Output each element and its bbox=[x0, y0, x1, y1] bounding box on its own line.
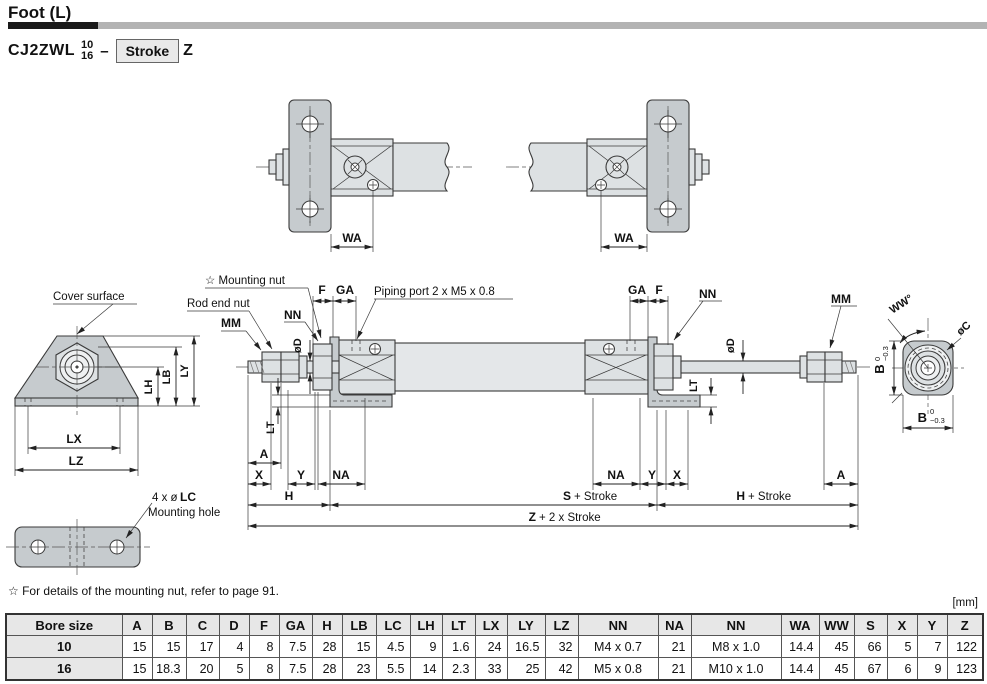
col-header-s: S bbox=[854, 614, 887, 636]
dim-label-ga-left: GA bbox=[336, 283, 354, 297]
dim-label-h-stroke-rest: + Stroke bbox=[748, 491, 791, 503]
col-header-nn-1: NN bbox=[578, 614, 658, 636]
cell: 7 bbox=[917, 636, 947, 658]
dimensions-table: Bore size A B C D F GA H LB LC LH LT LX … bbox=[5, 613, 984, 681]
cell: 5.5 bbox=[376, 658, 410, 681]
dim-label-nn-right: NN bbox=[699, 287, 716, 301]
top-view-left: WA bbox=[256, 100, 472, 252]
dim-label-lc: LC bbox=[180, 490, 196, 504]
col-header-ww: WW bbox=[819, 614, 854, 636]
dim-label-a-left: A bbox=[260, 447, 269, 461]
dim-label-wa-right: WA bbox=[614, 231, 634, 245]
cell: 32 bbox=[545, 636, 578, 658]
col-header-x: X bbox=[887, 614, 917, 636]
cell: 14.4 bbox=[781, 658, 819, 681]
col-header-ly: LY bbox=[507, 614, 545, 636]
cell: 42 bbox=[545, 658, 578, 681]
rod-end-view: WW° øC B 0 −0.3 B 0 −0.3 bbox=[872, 293, 973, 433]
dim-label-lt-right: LT bbox=[688, 379, 700, 392]
cell: M8 x 1.0 bbox=[691, 636, 781, 658]
col-header-h: H bbox=[312, 614, 342, 636]
cell: 45 bbox=[819, 658, 854, 681]
dim-label-z-stroke-letter: Z bbox=[529, 510, 536, 524]
cell: 15 bbox=[152, 636, 186, 658]
cell: 66 bbox=[854, 636, 887, 658]
cell: 24 bbox=[475, 636, 507, 658]
cell: 9 bbox=[410, 636, 442, 658]
cell: 67 bbox=[854, 658, 887, 681]
piping-port-label: Piping port 2 x M5 x 0.8 bbox=[374, 286, 495, 298]
dim-label-na-left: NA bbox=[332, 468, 350, 482]
col-header-f: F bbox=[249, 614, 279, 636]
cell: 8 bbox=[249, 658, 279, 681]
catalog-page: Foot (L) CJ2ZWL 10 16 – Stroke Z bbox=[0, 0, 987, 684]
dim-label-h-stroke-letter: H bbox=[736, 489, 745, 503]
dim-label-wa-left: WA bbox=[342, 231, 362, 245]
dim-label-lz: LZ bbox=[69, 454, 84, 468]
dim-label-f-right: F bbox=[655, 283, 662, 297]
dim-label-s-stroke-letter: S bbox=[563, 489, 571, 503]
col-header-lx: LX bbox=[475, 614, 507, 636]
cell: M4 x 0.7 bbox=[578, 636, 658, 658]
dim-label-lh: LH bbox=[143, 380, 155, 395]
dim-label-lb: LB bbox=[161, 370, 173, 385]
cell: 16.5 bbox=[507, 636, 545, 658]
dim-label-s-stroke-rest: + Stroke bbox=[574, 491, 617, 503]
cell: 28 bbox=[312, 636, 342, 658]
dim-label-a-right: A bbox=[837, 468, 846, 482]
cell: 5 bbox=[887, 636, 917, 658]
mounting-nut-footnote: ☆ For details of the mounting nut, refer… bbox=[8, 584, 279, 598]
dim-label-y-left: Y bbox=[297, 468, 305, 482]
foot-bracket-side-view: Cover surface LH LB LY LX LZ bbox=[15, 291, 200, 476]
cell: 45 bbox=[819, 636, 854, 658]
cell: 9 bbox=[917, 658, 947, 681]
cylinder-assembly-view: ☆ Mounting nut Rod end nut MM NN Piping … bbox=[187, 275, 872, 434]
dim-label-x-left: X bbox=[255, 468, 263, 482]
dim-label-h-left: H bbox=[285, 489, 294, 503]
col-header-lb: LB bbox=[342, 614, 376, 636]
cell: 23 bbox=[342, 658, 376, 681]
cell: 6 bbox=[887, 658, 917, 681]
col-header-y: Y bbox=[917, 614, 947, 636]
cell: 21 bbox=[658, 636, 691, 658]
col-header-lh: LH bbox=[410, 614, 442, 636]
col-header-lc: LC bbox=[376, 614, 410, 636]
col-header-nn-2: NN bbox=[691, 614, 781, 636]
dim-label-nn-left: NN bbox=[284, 308, 301, 322]
dim-label-b-side: B bbox=[872, 364, 887, 373]
col-header-d: D bbox=[219, 614, 249, 636]
table-row-bore-16: 16 15 18.3 20 5 8 7.5 28 23 5.5 14 2.3 3… bbox=[6, 658, 983, 681]
dim-label-oc: øC bbox=[955, 319, 974, 338]
cell: 15 bbox=[342, 636, 376, 658]
table-row-bore-10: 10 15 15 17 4 8 7.5 28 15 4.5 9 1.6 24 1… bbox=[6, 636, 983, 658]
cell: 15 bbox=[122, 636, 152, 658]
cell: M5 x 0.8 bbox=[578, 658, 658, 681]
dim-label-ww: WW° bbox=[888, 293, 916, 317]
dim-label-ga-right: GA bbox=[628, 283, 646, 297]
top-view-right: WA bbox=[506, 100, 709, 252]
cell: 28 bbox=[312, 658, 342, 681]
dim-label-mm-left: MM bbox=[221, 316, 241, 330]
cell: 18.3 bbox=[152, 658, 186, 681]
col-header-b: B bbox=[152, 614, 186, 636]
dim-label-od-left: øD bbox=[292, 338, 304, 353]
cell: 20 bbox=[186, 658, 219, 681]
cell: 122 bbox=[947, 636, 983, 658]
bore-size-cell: 10 bbox=[6, 636, 122, 658]
col-header-bore-size: Bore size bbox=[6, 614, 122, 636]
dim-label-f-left: F bbox=[318, 283, 325, 297]
cell: 5 bbox=[219, 658, 249, 681]
cell: 7.5 bbox=[279, 658, 312, 681]
cell: 7.5 bbox=[279, 636, 312, 658]
cell: 14.4 bbox=[781, 636, 819, 658]
col-header-z: Z bbox=[947, 614, 983, 636]
unit-label: [mm] bbox=[952, 597, 978, 609]
dimension-drawing: WA WA bbox=[0, 0, 987, 684]
dim-label-ly: LY bbox=[179, 364, 191, 378]
col-header-lz: LZ bbox=[545, 614, 578, 636]
col-header-na: NA bbox=[658, 614, 691, 636]
cell: 4 bbox=[219, 636, 249, 658]
dim-label-b-bottom-tol-lower: −0.3 bbox=[930, 416, 945, 425]
cell: 1.6 bbox=[442, 636, 475, 658]
dim-label-y-right: Y bbox=[648, 468, 656, 482]
bore-size-cell: 16 bbox=[6, 658, 122, 681]
cell: 123 bbox=[947, 658, 983, 681]
dim-label-mm-right: MM bbox=[831, 292, 851, 306]
dim-label-x-right: X bbox=[673, 468, 681, 482]
mounting-nut-label: ☆ Mounting nut bbox=[205, 275, 286, 287]
cell: 17 bbox=[186, 636, 219, 658]
mounting-hole-label: Mounting hole bbox=[148, 507, 220, 519]
cell: 15 bbox=[122, 658, 152, 681]
dim-label-lx: LX bbox=[66, 432, 81, 446]
dim-label-na-right: NA bbox=[607, 468, 625, 482]
dim-label-b-bottom: B bbox=[918, 410, 927, 425]
dim-label-b-bottom-tol-upper: 0 bbox=[930, 407, 934, 416]
cell: 8 bbox=[249, 636, 279, 658]
col-header-a: A bbox=[122, 614, 152, 636]
col-header-lt: LT bbox=[442, 614, 475, 636]
cell: 25 bbox=[507, 658, 545, 681]
col-header-ga: GA bbox=[279, 614, 312, 636]
mounting-plate-view: 4 x ø LC Mounting hole bbox=[6, 490, 220, 575]
col-header-c: C bbox=[186, 614, 219, 636]
col-header-wa: WA bbox=[781, 614, 819, 636]
mounting-hole-count-label: 4 x ø bbox=[152, 492, 178, 504]
cell: 4.5 bbox=[376, 636, 410, 658]
cell: 14 bbox=[410, 658, 442, 681]
cover-surface-label: Cover surface bbox=[53, 291, 125, 303]
dim-label-b-side-tol-lower: −0.3 bbox=[881, 346, 890, 361]
dim-label-od-right: øD bbox=[725, 338, 737, 353]
cell: 21 bbox=[658, 658, 691, 681]
cell: M10 x 1.0 bbox=[691, 658, 781, 681]
table-header-row: Bore size A B C D F GA H LB LC LH LT LX … bbox=[6, 614, 983, 636]
cell: 2.3 bbox=[442, 658, 475, 681]
dim-label-z-stroke-rest: + 2 x Stroke bbox=[539, 512, 601, 524]
cell: 33 bbox=[475, 658, 507, 681]
rod-end-nut-label: Rod end nut bbox=[187, 298, 250, 310]
